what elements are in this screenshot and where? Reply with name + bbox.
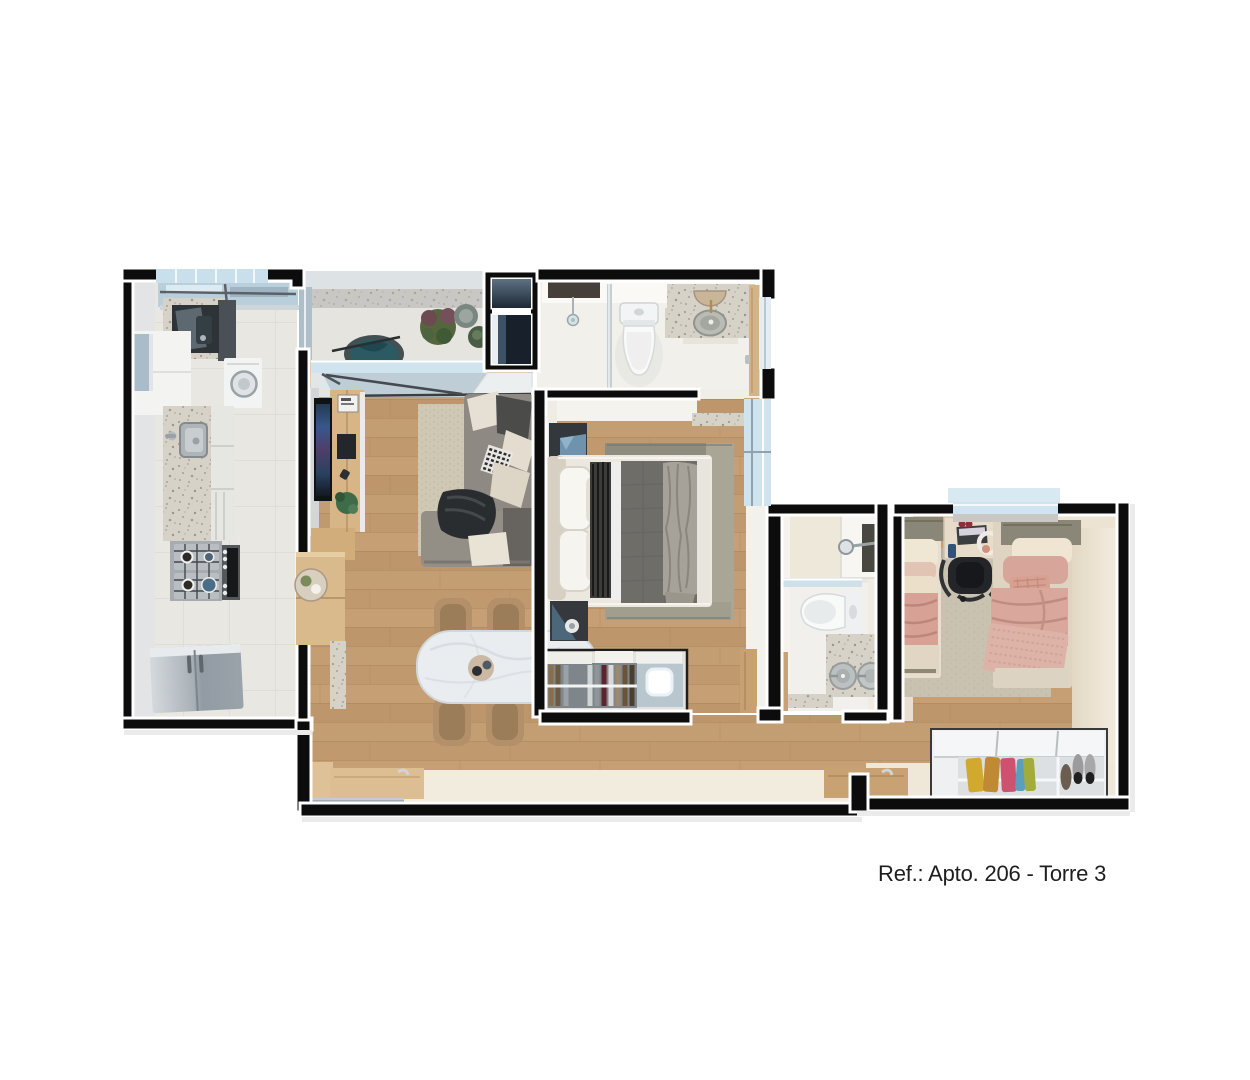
- svg-text:Ref.: Apto. 206 - Torre 3: Ref.: Apto. 206 - Torre 3: [878, 861, 1106, 886]
